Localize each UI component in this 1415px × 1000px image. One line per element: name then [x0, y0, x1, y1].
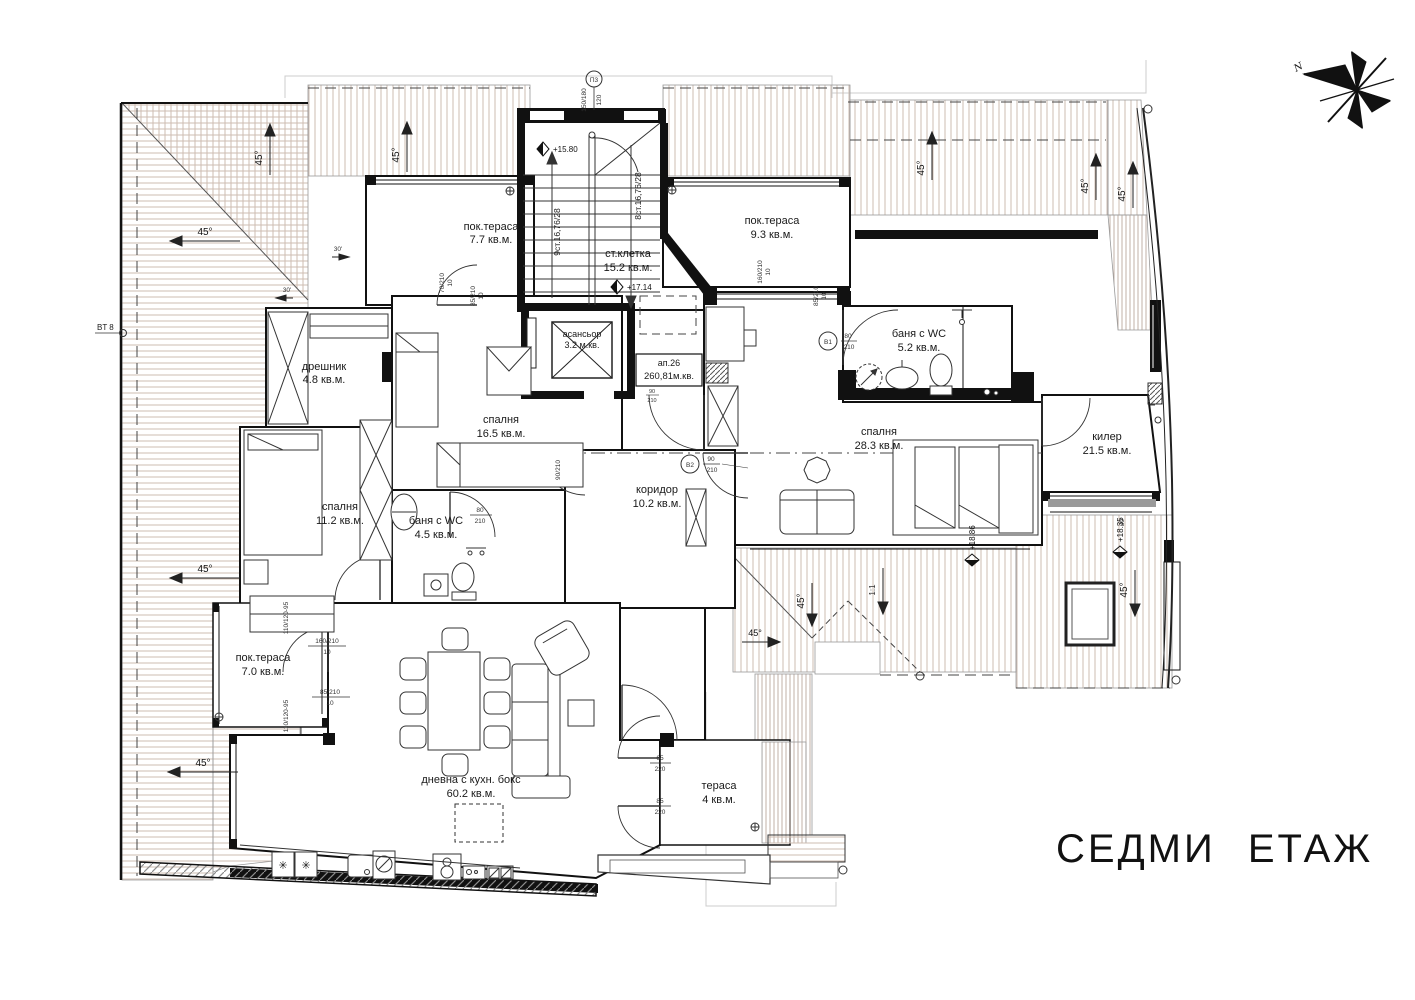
door-b2-h: 210: [707, 467, 718, 474]
svg-text:баня с WC: баня с WC: [892, 328, 946, 340]
svg-text:11.2 кв.м.: 11.2 кв.м.: [316, 515, 364, 527]
slope-45-label: 45°: [1117, 186, 1128, 201]
slope-45-label: 45°: [195, 758, 210, 769]
svg-text:спалня: спалня: [322, 501, 358, 513]
dim-220: 220: [655, 766, 666, 773]
dim-160-210: 160/210: [757, 260, 764, 284]
dim-85-210: 85/210: [320, 689, 340, 696]
roof-top-strip-right: [663, 85, 850, 176]
dim-65: 65: [656, 755, 664, 762]
svg-text:9.3 кв.м.: 9.3 кв.м.: [751, 229, 794, 241]
svg-text:коридор: коридор: [636, 484, 678, 496]
sheet-title: СЕДМИ ЕТАЖ: [1056, 827, 1373, 871]
dim-110-120-95: 110/120-95: [283, 601, 290, 634]
dim-160-210: 160/210: [315, 638, 339, 645]
level-floor: +17.14: [627, 283, 652, 292]
svg-text:пок.тераса: пок.тераса: [236, 652, 292, 664]
svg-text:баня с WC: баня с WC: [409, 515, 463, 527]
stair-flight-left-label: 9ст.16,76/28: [552, 208, 562, 256]
label-terrace-77: пок.тераса 7.7 кв.м.: [464, 221, 520, 246]
level-roof-right: +18.35: [1116, 517, 1125, 542]
bt8-label: BT 8: [97, 323, 114, 332]
apartment-area: 260,81м.кв.: [644, 371, 694, 382]
roof-top-right: [850, 100, 1108, 215]
floor-plan-sheet: 45° 45° 45° 45° 45° 45° 45° 45° 45° 45° …: [0, 0, 1415, 1000]
svg-text:килер: килер: [1092, 431, 1122, 443]
svg-text:пок.тераса: пок.тераса: [464, 221, 520, 233]
door-b1-id: B1: [824, 339, 832, 346]
svg-text:5.2 кв.м.: 5.2 кв.м.: [898, 342, 941, 354]
svg-text:4.8 кв.м.: 4.8 кв.м.: [303, 374, 346, 386]
door-b1-w: 80: [844, 333, 852, 340]
slope-45-label: 45°: [796, 593, 807, 608]
dim-85-210: 85/210: [470, 286, 477, 306]
svg-text:7.7 кв.м.: 7.7 кв.м.: [470, 234, 513, 246]
svg-text:3.2 м.кв.: 3.2 м.кв.: [565, 340, 600, 350]
dim-sub: 10: [447, 279, 454, 287]
slope-45-label: 45°: [254, 150, 265, 165]
dim-80: 80: [476, 507, 484, 514]
slope-45-label: 45°: [391, 147, 402, 162]
door-b2-id: B2: [686, 462, 694, 469]
dim-sub: 10: [821, 292, 828, 300]
dim-120: 120: [596, 94, 603, 105]
roof-top-strip-left: [308, 85, 530, 176]
dim-220: 220: [655, 809, 666, 816]
svg-text:7.0 кв.м.: 7.0 кв.м.: [242, 666, 285, 678]
slope-45-label: 45°: [748, 628, 762, 638]
svg-text:60.2 кв.м.: 60.2 кв.м.: [447, 788, 496, 800]
stair-flight-right-label: 8ст.16,76/28: [633, 172, 643, 220]
svg-text:15.2 кв.м.: 15.2 кв.м.: [604, 262, 653, 274]
slope-45-label: 45°: [1119, 582, 1130, 597]
dim-sub: 10: [326, 700, 334, 707]
svg-text:21.5 кв.м.: 21.5 кв.м.: [1083, 445, 1132, 457]
svg-text:дрешник: дрешник: [302, 361, 347, 373]
compass-rose-icon: N: [1291, 52, 1394, 128]
freezer-star-icon: ✳: [278, 860, 287, 872]
dim-85: 85: [656, 798, 664, 805]
svg-text:дневна с кухн. бокс: дневна с кухн. бокс: [421, 774, 521, 786]
slope-45-label: 45°: [197, 564, 212, 575]
dim-210: 210: [475, 518, 486, 525]
dim-110-120-95: 110/120-95: [283, 699, 290, 732]
dim-sub: 10: [478, 292, 485, 300]
floor-plan-drawing: 45° 45° 45° 45° 45° 45° 45° 45° 45° 45° …: [0, 0, 1415, 1000]
svg-text:тераса: тераса: [702, 780, 738, 792]
svg-text:асансьор: асансьор: [563, 329, 602, 339]
label-dressing: дрешник 4.8 кв.м.: [302, 361, 347, 386]
dim-sub: 10: [765, 268, 772, 276]
dim-sub: 10: [323, 649, 331, 656]
room-storage: [1042, 395, 1160, 492]
apartment-id-box: ап.26 260,81м.кв. 90 210: [636, 354, 702, 404]
slope-30-label: 30': [334, 246, 342, 253]
svg-text:4 кв.м.: 4 кв.м.: [702, 794, 736, 806]
apartment-door-h: 210: [647, 398, 656, 404]
slope-45-label: 45°: [1080, 178, 1091, 193]
roof-right-strip2: [1108, 215, 1153, 330]
slope-45-label: 45°: [916, 160, 927, 175]
slope-ratio-label: 1:1: [868, 584, 877, 596]
compass-north-label: N: [1291, 60, 1306, 75]
skylight: [1066, 583, 1114, 645]
door-b2-w: 90: [707, 456, 715, 463]
svg-text:пок.тераса: пок.тераса: [745, 215, 801, 227]
svg-text:ст.клетка: ст.клетка: [605, 248, 652, 260]
room-hall: [620, 608, 705, 740]
svg-text:спалня: спалня: [861, 426, 897, 438]
label-elevator: асансьор 3.2 м.кв.: [563, 329, 602, 350]
level-stair-landing: +15.80: [553, 145, 578, 154]
svg-text:10.2 кв.м.: 10.2 кв.м.: [633, 498, 682, 510]
svg-text:16.5 кв.м.: 16.5 кв.м.: [477, 428, 526, 440]
dim-70-210: 70/210: [439, 273, 446, 293]
dim-150-180: 150/180: [581, 88, 588, 112]
grid-mark-label: П3: [590, 77, 599, 84]
level-roof-left: +18.86: [968, 525, 977, 550]
dim-85-210: 85/210: [813, 286, 820, 306]
apartment-number: ап.26: [658, 358, 680, 368]
door-b1-h: 210: [844, 344, 855, 351]
grid-mark: П3 150/180 120: [581, 71, 603, 112]
slope-45-label: 45°: [197, 227, 212, 238]
slope-30-label: 30': [283, 287, 291, 294]
apartment-door-w: 90: [649, 389, 655, 395]
svg-text:28.3 кв.м.: 28.3 кв.м.: [855, 440, 904, 452]
svg-text:спалня: спалня: [483, 414, 519, 426]
svg-text:4.5 кв.м.: 4.5 кв.м.: [415, 529, 458, 541]
fridge-star-icon: ✳: [301, 860, 310, 872]
dim-90-210: 90/210: [555, 460, 562, 480]
